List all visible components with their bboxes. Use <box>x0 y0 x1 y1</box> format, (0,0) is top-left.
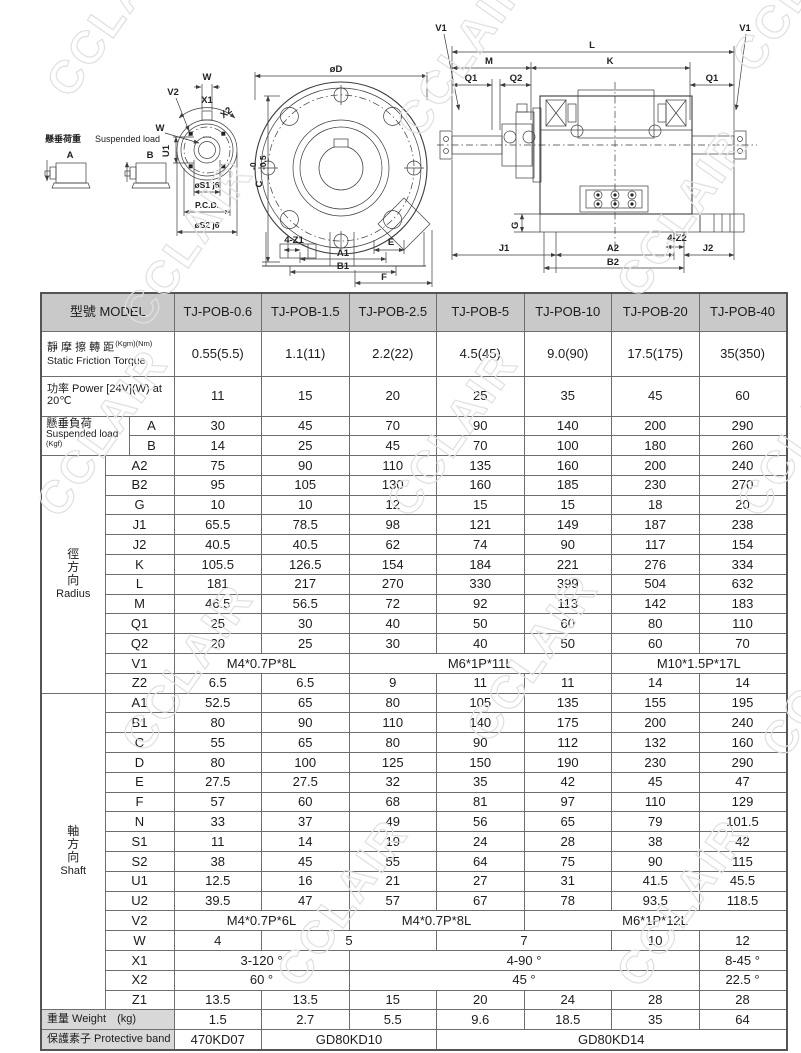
table-row: N333749566579101.5 <box>41 812 787 832</box>
row-label: 靜 摩 擦 轉 距(Kgm)(Nm)Static Friction Torque <box>41 331 174 376</box>
table-cell: 14 <box>699 673 787 693</box>
front-view: øD C -0 -0.5 4-Z1 A1 B1 E <box>248 64 432 287</box>
table-cell: 39.5 <box>174 891 262 911</box>
table-cell: M10*1.5P*17L <box>612 654 787 674</box>
table-cell: 20 <box>174 634 262 654</box>
table-cell: 101.5 <box>699 812 787 832</box>
table-cell: 14 <box>612 673 700 693</box>
table-cell: 40 <box>349 614 437 634</box>
table-cell: 97 <box>524 792 612 812</box>
row-label: B1 <box>105 713 174 733</box>
table-cell: 25 <box>437 376 525 416</box>
table-row: 靜 摩 擦 轉 距(Kgm)(Nm)Static Friction Torque… <box>41 331 787 376</box>
table-row: U239.54757677893.5118.5 <box>41 891 787 911</box>
table-cell: 80 <box>174 753 262 773</box>
table-cell: 4-90 ° <box>349 951 699 971</box>
dim-label-k: K <box>607 56 614 67</box>
dim-label-s2: øS2 j6 <box>194 220 219 230</box>
table-cell: 57 <box>349 891 437 911</box>
table-cell: 65 <box>262 693 350 713</box>
model-column-header: TJ-POB-20 <box>612 293 700 331</box>
table-cell: 50 <box>524 634 612 654</box>
table-cell: 35 <box>524 376 612 416</box>
table-cell: 129 <box>699 792 787 812</box>
table-cell: 183 <box>699 594 787 614</box>
table-cell: 160 <box>524 456 612 476</box>
table-cell: 27 <box>437 871 525 891</box>
table-cell: 100 <box>262 753 350 773</box>
table-row: Z26.56.5911111414 <box>41 673 787 693</box>
row-label: N <box>105 812 174 832</box>
table-cell: 217 <box>262 574 350 594</box>
row-label: S2 <box>105 852 174 872</box>
table-cell: 90 <box>262 713 350 733</box>
row-label: L <box>105 574 174 594</box>
row-label: J1 <box>105 515 174 535</box>
row-label: Z1 <box>105 990 174 1010</box>
dim-label-j1: J1 <box>499 243 510 254</box>
table-cell: 105.5 <box>174 555 262 575</box>
table-cell: 33 <box>174 812 262 832</box>
table-cell: 20 <box>437 990 525 1010</box>
table-cell: 150 <box>437 753 525 773</box>
legend-icon-a-label: A <box>67 150 74 161</box>
table-cell: 80 <box>349 733 437 753</box>
dim-label-f: F <box>381 272 387 283</box>
table-cell: 330 <box>437 574 525 594</box>
table-cell: 40.5 <box>262 535 350 555</box>
table-cell: 25 <box>262 634 350 654</box>
table-cell: 35 <box>437 772 525 792</box>
table-cell: 25 <box>262 436 350 456</box>
table-cell: 110 <box>612 792 700 812</box>
model-column-header: TJ-POB-10 <box>524 293 612 331</box>
table-cell: 21 <box>349 871 437 891</box>
dim-label-b1: B1 <box>337 261 350 272</box>
table-cell: 37 <box>262 812 350 832</box>
table-row: 功率 Power [24V](W) at 20℃11152025354560 <box>41 376 787 416</box>
dim-label-c-tol-top: -0 <box>248 162 258 170</box>
table-cell: M6*1P*12L <box>524 911 787 931</box>
table-header-row: 型號 MODELTJ-POB-0.6TJ-POB-1.5TJ-POB-2.5TJ… <box>41 293 787 331</box>
table-cell: 46.5 <box>174 594 262 614</box>
table-cell: 112 <box>524 733 612 753</box>
table-cell: 64 <box>699 1010 787 1030</box>
table-cell: 135 <box>437 456 525 476</box>
table-cell: 1.5 <box>174 1010 262 1030</box>
table-cell: 154 <box>699 535 787 555</box>
model-column-header: TJ-POB-2.5 <box>349 293 437 331</box>
table-row: J165.578.598121149187238 <box>41 515 787 535</box>
table-cell: 65 <box>524 812 612 832</box>
table-cell: 56.5 <box>262 594 350 614</box>
row-label: A1 <box>105 693 174 713</box>
table-cell: 45 ° <box>349 970 699 990</box>
row-label: U2 <box>105 891 174 911</box>
row-label: 保護素子 Protective band <box>41 1030 174 1050</box>
table-cell: 13.5 <box>262 990 350 1010</box>
table-cell: 90 <box>437 733 525 753</box>
table-cell: 40 <box>437 634 525 654</box>
table-cell: 45 <box>262 416 350 436</box>
table-cell: 56 <box>437 812 525 832</box>
table-row: J240.540.5627490117154 <box>41 535 787 555</box>
table-cell: 18 <box>612 495 700 515</box>
row-label: Q1 <box>105 614 174 634</box>
table-cell: 47 <box>699 772 787 792</box>
table-cell: M4*0.7P*6L <box>174 911 349 931</box>
table-cell: 190 <box>524 753 612 773</box>
table-cell: 130 <box>349 475 437 495</box>
table-cell: 93.5 <box>612 891 700 911</box>
table-cell: 5 <box>262 931 437 951</box>
table-cell: 80 <box>174 713 262 733</box>
table-cell: 230 <box>612 753 700 773</box>
dim-label-c-tol-bot: -0.5 <box>258 155 268 170</box>
table-cell: 160 <box>437 475 525 495</box>
table-cell: 90 <box>437 416 525 436</box>
table-cell: 50 <box>437 614 525 634</box>
table-cell: 55 <box>174 733 262 753</box>
table-row: B295105130160185230270 <box>41 475 787 495</box>
legend-title-zh: 懸垂荷重 <box>45 133 81 144</box>
table-cell: 14 <box>262 832 350 852</box>
table-cell: 399 <box>524 574 612 594</box>
dim-label-w-top: W <box>203 72 212 83</box>
table-cell: 117 <box>612 535 700 555</box>
table-row: U112.51621273141.545.5 <box>41 871 787 891</box>
table-cell: 140 <box>437 713 525 733</box>
table-cell: 260 <box>699 436 787 456</box>
table-cell: 195 <box>699 693 787 713</box>
dim-label-m: M <box>485 56 493 67</box>
spec-table: 型號 MODELTJ-POB-0.6TJ-POB-1.5TJ-POB-2.5TJ… <box>40 292 788 1051</box>
table-cell: 75 <box>524 852 612 872</box>
table-cell: 118.5 <box>699 891 787 911</box>
table-cell: 115 <box>699 852 787 872</box>
table-cell: 28 <box>699 990 787 1010</box>
table-cell: 221 <box>524 555 612 575</box>
table-row: V1M4*0.7P*8LM6*1P*11LM10*1.5P*17L <box>41 654 787 674</box>
dim-label-e: E <box>388 237 394 248</box>
row-label: Z2 <box>105 673 174 693</box>
dim-label-z2: 4-Z2 <box>667 233 687 244</box>
table-cell: 28 <box>612 990 700 1010</box>
table-cell: 126.5 <box>262 555 350 575</box>
table-cell: 470KD07 <box>174 1030 262 1050</box>
table-cell: 78.5 <box>262 515 350 535</box>
table-row: D80100125150190230290 <box>41 753 787 773</box>
table-cell: 110 <box>349 713 437 733</box>
dim-label-q1-right: Q1 <box>706 73 719 84</box>
table-cell: 110 <box>699 614 787 634</box>
table-cell: 30 <box>349 634 437 654</box>
table-cell: 64 <box>437 852 525 872</box>
table-cell: 92 <box>437 594 525 614</box>
table-cell: 80 <box>612 614 700 634</box>
dim-label-d: øD <box>330 64 343 75</box>
table-cell: 70 <box>699 634 787 654</box>
dim-label-s1: øS1 j6 <box>194 180 219 190</box>
table-cell: 10 <box>612 931 700 951</box>
dim-label-v1-right: V1 <box>739 23 751 34</box>
dim-label-u1: U1 <box>161 144 172 157</box>
table-cell: 6.5 <box>174 673 262 693</box>
table-cell: 240 <box>699 456 787 476</box>
table-cell: 38 <box>174 852 262 872</box>
table-cell: 9.6 <box>437 1010 525 1030</box>
table-cell: 90 <box>262 456 350 476</box>
table-cell: M6*1P*11L <box>349 654 612 674</box>
table-cell: 10 <box>262 495 350 515</box>
table-cell: 4.5(45) <box>437 331 525 376</box>
dim-label-pcd: P.C.D. <box>195 200 219 210</box>
table-cell: 15 <box>524 495 612 515</box>
table-row: Q220253040506070 <box>41 634 787 654</box>
table-cell: 14 <box>174 436 262 456</box>
table-cell: 160 <box>699 733 787 753</box>
dim-label-w-left: W <box>156 123 165 134</box>
row-label: F <box>105 792 174 812</box>
table-cell: 181 <box>174 574 262 594</box>
table-cell: 5.5 <box>349 1010 437 1030</box>
table-cell: 334 <box>699 555 787 575</box>
table-cell: 175 <box>524 713 612 733</box>
table-cell: 504 <box>612 574 700 594</box>
dim-label-b2: B2 <box>607 257 619 268</box>
table-cell: 60 ° <box>174 970 349 990</box>
table-row: 重量 Weight (kg)1.52.75.59.618.53564 <box>41 1010 787 1030</box>
row-label: J2 <box>105 535 174 555</box>
legend-icon-b-label: B <box>147 150 154 161</box>
table-cell: 9 <box>349 673 437 693</box>
table-cell: 15 <box>437 495 525 515</box>
table-cell: 17.5(175) <box>612 331 700 376</box>
row-label: 重量 Weight (kg) <box>41 1010 174 1030</box>
suspended-load-legend: 懸垂荷重 Suspended load A B <box>45 133 170 188</box>
row-label: A <box>129 416 174 436</box>
table-cell: 65.5 <box>174 515 262 535</box>
table-row: Q1253040506080110 <box>41 614 787 634</box>
table-cell: 180 <box>612 436 700 456</box>
table-cell: 12.5 <box>174 871 262 891</box>
table-cell: M4*0.7P*8L <box>174 654 349 674</box>
row-label: M <box>105 594 174 614</box>
table-cell: 185 <box>524 475 612 495</box>
table-cell: 24 <box>437 832 525 852</box>
row-label: 功率 Power [24V](W) at 20℃ <box>41 376 174 416</box>
table-cell: 45 <box>612 376 700 416</box>
table-row: X13-120 °4-90 °8-45 ° <box>41 951 787 971</box>
table-row: 徑方向RadiusA27590110135160200240 <box>41 456 787 476</box>
table-cell: 187 <box>612 515 700 535</box>
table-cell: 135 <box>524 693 612 713</box>
table-cell: 98 <box>349 515 437 535</box>
dim-label-c: C <box>254 180 265 187</box>
row-label: Q2 <box>105 634 174 654</box>
table-cell: 35(350) <box>699 331 787 376</box>
legend-title-en: Suspended load <box>95 134 160 144</box>
row-label: K <box>105 555 174 575</box>
table-cell: 11 <box>437 673 525 693</box>
table-cell: 78 <box>524 891 612 911</box>
side-view: V1 V1 L M K Q1 Q2 Q1 <box>435 23 757 273</box>
table-cell: 184 <box>437 555 525 575</box>
table-row: 保護素子 Protective band470KD07GD80KD10GD80K… <box>41 1030 787 1050</box>
table-cell: 27.5 <box>262 772 350 792</box>
table-cell: 45 <box>262 852 350 872</box>
row-label: X1 <box>105 951 174 971</box>
table-cell: 10 <box>174 495 262 515</box>
table-cell: 20 <box>349 376 437 416</box>
table-cell: 68 <box>349 792 437 812</box>
table-cell: 70 <box>349 416 437 436</box>
table-row: S2384555647590115 <box>41 852 787 872</box>
table-cell: 30 <box>174 416 262 436</box>
datasheet-page: 懸垂荷重 Suspended load A B <box>0 0 801 1053</box>
table-cell: 12 <box>699 931 787 951</box>
table-row: V2M4*0.7P*6LM4*0.7P*8LM6*1P*12L <box>41 911 787 931</box>
table-cell: 18.5 <box>524 1010 612 1030</box>
table-cell: 3-120 ° <box>174 951 349 971</box>
dim-label-v2: V2 <box>167 87 179 98</box>
dim-label-a1: A1 <box>337 248 350 259</box>
table-cell: 49 <box>349 812 437 832</box>
row-label: S1 <box>105 832 174 852</box>
table-cell: 90 <box>612 852 700 872</box>
table-cell: 24 <box>524 990 612 1010</box>
table-row: B18090110140175200240 <box>41 713 787 733</box>
table-cell: 45 <box>612 772 700 792</box>
table-cell: 140 <box>524 416 612 436</box>
table-cell: 200 <box>612 456 700 476</box>
table-cell: 19 <box>349 832 437 852</box>
table-cell: 27.5 <box>174 772 262 792</box>
table-row: Z113.513.51520242828 <box>41 990 787 1010</box>
table-cell: 270 <box>349 574 437 594</box>
table-row: C55658090112132160 <box>41 733 787 753</box>
row-label: G <box>105 495 174 515</box>
table-cell: 12 <box>349 495 437 515</box>
table-cell: 6.5 <box>262 673 350 693</box>
table-row: K105.5126.5154184221276334 <box>41 555 787 575</box>
technical-drawings: 懸垂荷重 Suspended load A B <box>0 0 801 292</box>
table-cell: 238 <box>699 515 787 535</box>
table-cell: 45 <box>349 436 437 456</box>
table-cell: GD80KD10 <box>262 1030 437 1050</box>
table-cell: 45.5 <box>699 871 787 891</box>
table-cell: 22.5 ° <box>699 970 787 990</box>
table-cell: 7 <box>437 931 612 951</box>
table-cell: 28 <box>524 832 612 852</box>
table-cell: 142 <box>612 594 700 614</box>
row-label: B <box>129 436 174 456</box>
table-cell: 149 <box>524 515 612 535</box>
table-cell: GD80KD14 <box>437 1030 787 1050</box>
table-cell: 632 <box>699 574 787 594</box>
table-cell: M4*0.7P*8L <box>349 911 524 931</box>
group-label: 軸方向Shaft <box>41 693 105 1010</box>
table-cell: 60 <box>524 614 612 634</box>
model-column-header: TJ-POB-1.5 <box>262 293 350 331</box>
dim-label-z1: 4-Z1 <box>284 235 304 246</box>
dim-label-x2: X2 <box>218 105 234 121</box>
table-cell: 67 <box>437 891 525 911</box>
group-label: 懸垂負荷Suspended load (Kgf) <box>41 416 129 456</box>
table-cell: 11 <box>524 673 612 693</box>
table-cell: 270 <box>699 475 787 495</box>
dim-label-x1: X1 <box>201 95 213 106</box>
table-row: F5760688197110129 <box>41 792 787 812</box>
table-cell: 57 <box>174 792 262 812</box>
table-cell: 60 <box>262 792 350 812</box>
row-label: C <box>105 733 174 753</box>
dim-label-j2: J2 <box>703 243 714 254</box>
table-cell: 60 <box>699 376 787 416</box>
table-cell: 125 <box>349 753 437 773</box>
table-row: B14254570100180260 <box>41 436 787 456</box>
table-cell: 121 <box>437 515 525 535</box>
table-cell: 240 <box>699 713 787 733</box>
table-cell: 32 <box>349 772 437 792</box>
table-cell: 13.5 <box>174 990 262 1010</box>
table-cell: 11 <box>174 832 262 852</box>
table-row: L181217270330399504632 <box>41 574 787 594</box>
table-cell: 65 <box>262 733 350 753</box>
model-column-header: TJ-POB-0.6 <box>174 293 262 331</box>
table-row: G10101215151820 <box>41 495 787 515</box>
small-front-view: W X1 X2 V2 W U1 øS1 j6 P.C.D. øS2 j6 <box>156 72 237 236</box>
row-label: D <box>105 753 174 773</box>
table-row: 軸方向ShaftA152.56580105135155195 <box>41 693 787 713</box>
table-cell: 200 <box>612 713 700 733</box>
table-cell: 90 <box>524 535 612 555</box>
model-header: 型號 MODEL <box>41 293 174 331</box>
table-cell: 38 <box>612 832 700 852</box>
table-cell: 9.0(90) <box>524 331 612 376</box>
table-cell: 70 <box>437 436 525 456</box>
group-label: 徑方向Radius <box>41 456 105 694</box>
table-cell: 25 <box>174 614 262 634</box>
table-cell: 290 <box>699 753 787 773</box>
table-cell: 2.2(22) <box>349 331 437 376</box>
table-cell: 2.7 <box>262 1010 350 1030</box>
table-cell: 30 <box>262 614 350 634</box>
row-label: E <box>105 772 174 792</box>
row-label: W <box>105 931 174 951</box>
legend-icon-a: A <box>45 150 90 188</box>
table-cell: 72 <box>349 594 437 614</box>
table-cell: 42 <box>699 832 787 852</box>
row-label: A2 <box>105 456 174 476</box>
table-cell: 80 <box>349 693 437 713</box>
table-cell: 154 <box>349 555 437 575</box>
table-cell: 113 <box>524 594 612 614</box>
dim-label-l: L <box>589 40 595 51</box>
table-row: 懸垂負荷Suspended load (Kgf)A304570901402002… <box>41 416 787 436</box>
table-cell: 100 <box>524 436 612 456</box>
row-label: V1 <box>105 654 174 674</box>
table-cell: 31 <box>524 871 612 891</box>
model-column-header: TJ-POB-40 <box>699 293 787 331</box>
table-cell: 95 <box>174 475 262 495</box>
table-cell: 42 <box>524 772 612 792</box>
table-cell: 290 <box>699 416 787 436</box>
row-label: V2 <box>105 911 174 931</box>
table-cell: 0.55(5.5) <box>174 331 262 376</box>
table-cell: 8-45 ° <box>699 951 787 971</box>
table-cell: 230 <box>612 475 700 495</box>
